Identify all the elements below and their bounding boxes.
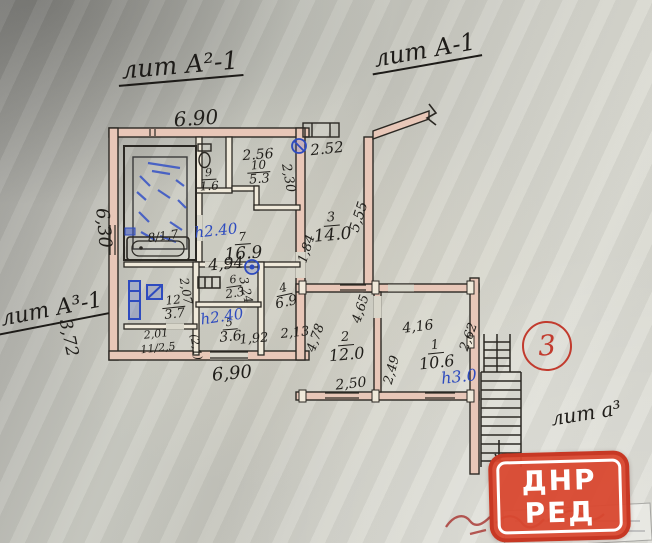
- watermark-badge: ДНР РЕД: [488, 450, 631, 543]
- dimension-bottom: 6,90: [211, 363, 252, 384]
- room-label-10: 10 5.3: [246, 158, 271, 188]
- room-label-11: 11/2,5: [140, 341, 176, 356]
- dimension-1-92: 1,92: [239, 331, 269, 346]
- room-10-area: 5.3: [249, 172, 271, 188]
- room-3-area: 14.0: [313, 224, 352, 246]
- stove-icon: [198, 277, 220, 288]
- dimension-2-01: 2,01: [143, 327, 169, 341]
- height-label-room7: h2.40: [194, 221, 238, 240]
- room-5-area: 3.6: [219, 328, 243, 346]
- room-7-area: 16.9: [224, 243, 263, 265]
- washbasin-icon: [125, 228, 135, 235]
- floor-plan-photo: лит А²-1 лит А-1 лит А³-1 лит а³ 6.90 6,…: [0, 0, 652, 543]
- staircase: [481, 334, 521, 467]
- room-label-2: 2 12.0: [327, 329, 365, 365]
- height-label-room1: h3.0: [440, 367, 477, 387]
- dimension-left: 6,30: [92, 207, 113, 248]
- room-label-3: 3 14.0: [312, 210, 353, 247]
- room-9-area: 1.6: [199, 179, 219, 193]
- watermark-line1: ДНР: [521, 464, 597, 497]
- boiler-icon: [129, 281, 140, 319]
- dimension-top: 6.90: [173, 106, 219, 129]
- watermark-frame: ДНР РЕД: [496, 458, 623, 534]
- room-6-area: 2.3: [224, 285, 245, 301]
- blue-survey-mark: [292, 139, 306, 153]
- dimension-2-13: 2,13: [280, 325, 310, 341]
- room-12-area: 3.7: [164, 306, 186, 323]
- room-label-9: 9 1.6: [199, 167, 219, 194]
- room-label-6: 6 2.3: [223, 273, 246, 301]
- room-2-area: 12.0: [328, 344, 365, 365]
- sink-icon: [147, 285, 162, 299]
- watermark-line2: РЕД: [524, 496, 595, 529]
- room-label-12: 12 3.7: [161, 293, 187, 323]
- dimension-4-16: 4,16: [402, 318, 435, 336]
- dimension-2-50: 2,50: [335, 375, 367, 392]
- apartment-number: 3: [537, 331, 557, 360]
- dimension-2-52: 2.52: [310, 140, 345, 158]
